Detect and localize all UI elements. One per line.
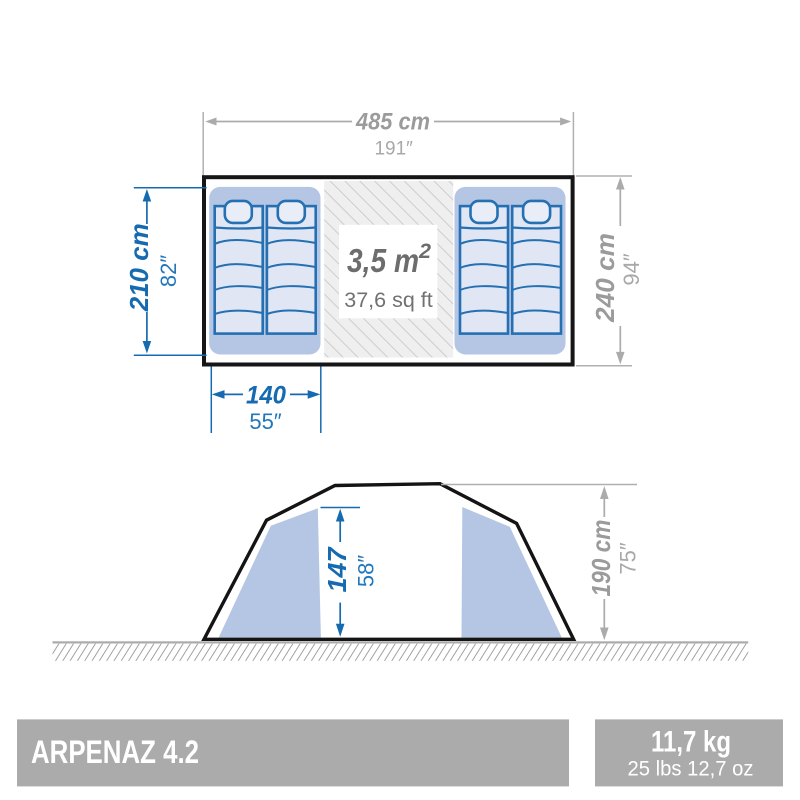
svg-text:140: 140 [246,382,286,410]
svg-text:25 lbs 12,7 oz: 25 lbs 12,7 oz [628,758,754,781]
svg-text:485 cm: 485 cm [355,109,430,136]
svg-text:75″: 75″ [616,542,641,574]
svg-text:2: 2 [418,240,431,263]
svg-text:94″: 94″ [619,253,644,285]
svg-text:37,6 sq ft: 37,6 sq ft [344,288,432,312]
svg-text:82″: 82″ [156,255,181,287]
svg-text:11,7 kg: 11,7 kg [651,726,731,759]
svg-text:147: 147 [322,546,352,593]
svg-text:3,5 m: 3,5 m [347,242,419,279]
svg-text:240 cm: 240 cm [590,233,620,323]
svg-text:210 cm: 210 cm [124,223,154,312]
svg-text:55″: 55″ [249,409,281,434]
svg-text:ARPENAZ 4.2: ARPENAZ 4.2 [31,734,199,770]
svg-text:190 cm: 190 cm [586,520,616,597]
svg-text:58″: 58″ [354,555,379,587]
svg-text:191″: 191″ [374,139,413,160]
